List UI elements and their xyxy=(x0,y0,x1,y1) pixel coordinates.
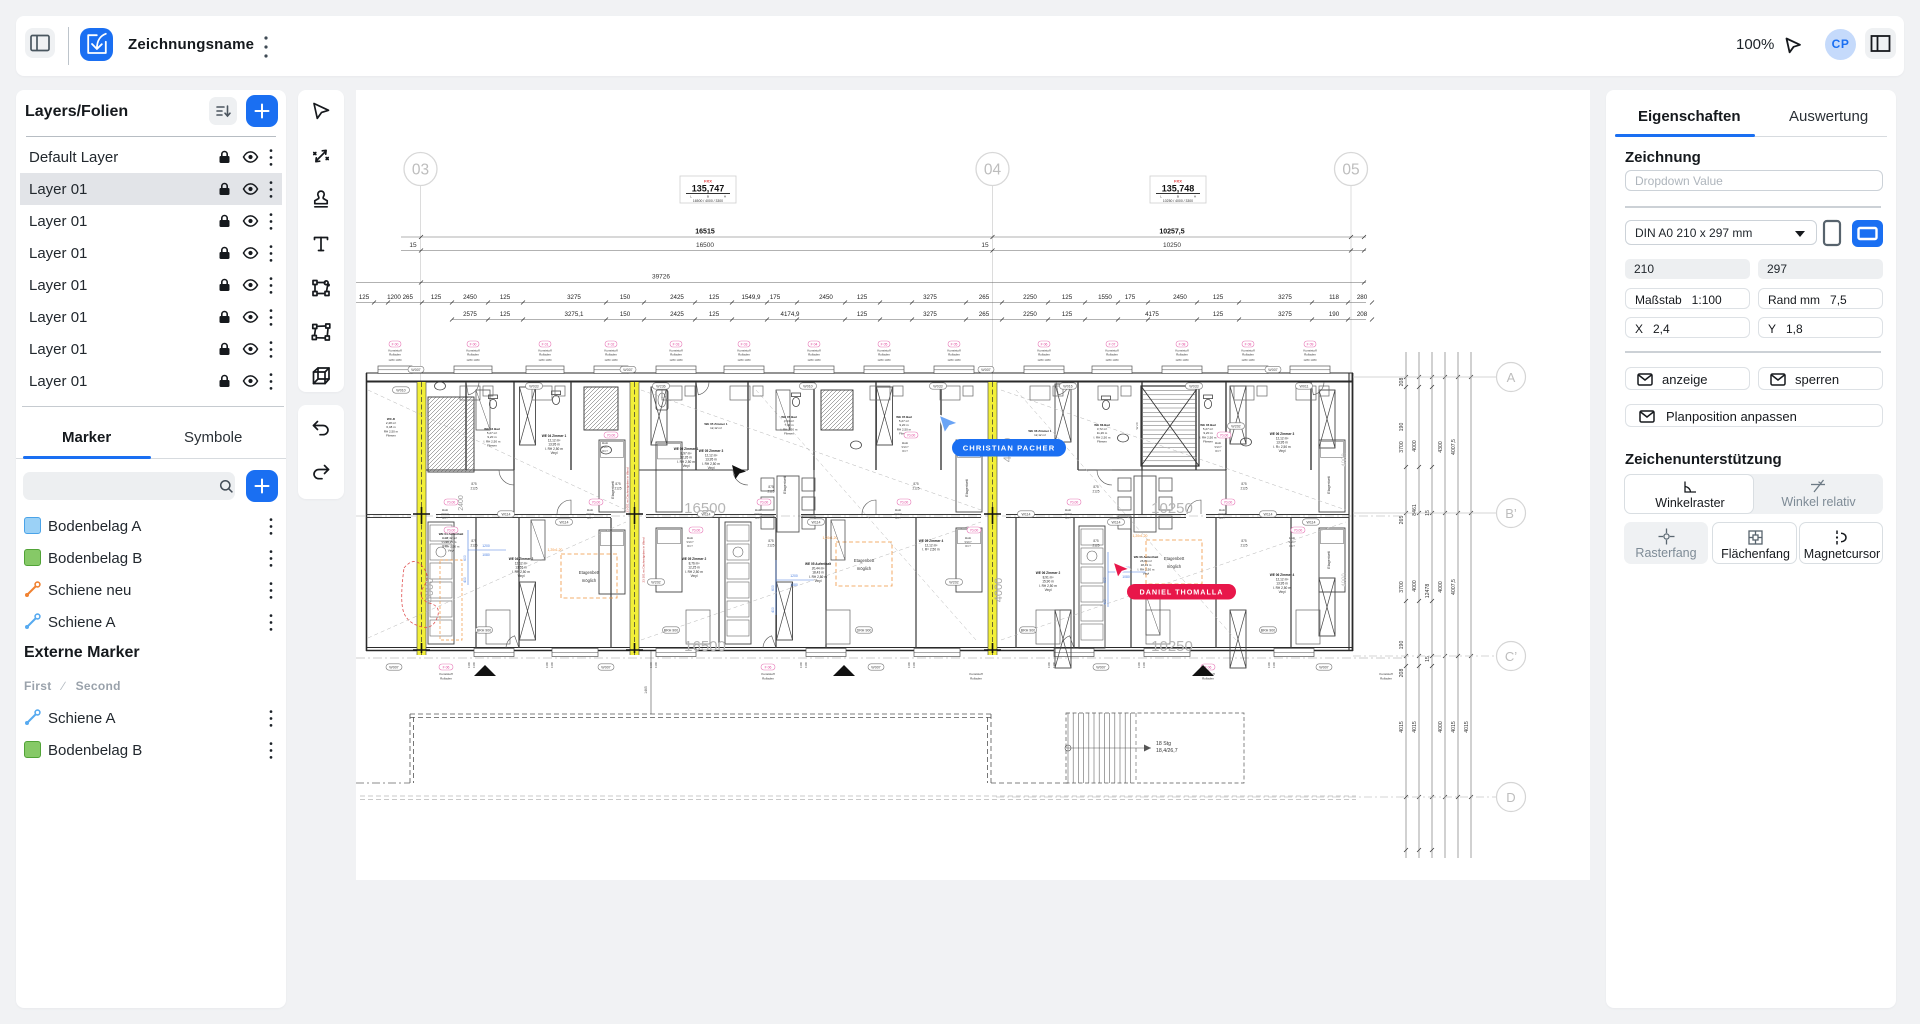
svg-text:möglich: möglich xyxy=(582,578,597,583)
svg-text:265: 265 xyxy=(979,294,990,301)
svg-text:1380: 1380 xyxy=(1142,661,1146,668)
svg-text:F 00: F 00 xyxy=(392,343,399,347)
svg-text:1280 1380: 1280 1380 xyxy=(604,358,618,362)
svg-text:D: D xyxy=(1506,790,1515,805)
svg-text:875: 875 xyxy=(471,539,477,543)
svg-text:23 301 es Dachneigeben in Wand: 23 301 es Dachneigeben in Wand xyxy=(642,537,646,582)
svg-text:70,00: 70,00 xyxy=(760,501,769,505)
svg-text:Vinyl: Vinyl xyxy=(551,451,558,455)
svg-text:1280 1380: 1280 1380 xyxy=(1037,358,1051,362)
svg-text:1549,9: 1549,9 xyxy=(742,294,761,301)
svg-text:Vinyl: Vinyl xyxy=(518,574,525,578)
svg-text:1080: 1080 xyxy=(482,553,490,557)
svg-text:2450: 2450 xyxy=(1173,294,1187,301)
svg-text:16500: 16500 xyxy=(696,242,714,249)
svg-text:F 05: F 05 xyxy=(951,343,958,347)
svg-text:Rolladen: Rolladen xyxy=(808,353,820,357)
svg-text:W114: W114 xyxy=(1263,513,1272,517)
svg-text:Rolladen: Rolladen xyxy=(1202,677,1214,681)
svg-text:Rolladen: Rolladen xyxy=(738,353,750,357)
svg-text:1280 1380: 1280 1380 xyxy=(538,358,552,362)
svg-text:10250: 10250 xyxy=(1151,638,1193,655)
svg-text:möglich: möglich xyxy=(857,566,872,571)
svg-text:RC?: RC? xyxy=(587,516,593,520)
svg-text:1,20x1,20: 1,20x1,20 xyxy=(1133,534,1148,538)
svg-text:8461: 8461 xyxy=(1412,504,1418,516)
svg-text:2125: 2125 xyxy=(767,544,774,548)
svg-text:4175: 4175 xyxy=(1145,311,1159,318)
svg-text:Etagenbett: Etagenbett xyxy=(1327,476,1331,493)
svg-text:135,748: 135,748 xyxy=(1162,184,1195,194)
svg-text:Etagenbett: Etagenbett xyxy=(965,479,969,496)
svg-text:1380: 1380 xyxy=(1272,661,1276,668)
svg-text:2125: 2125 xyxy=(470,487,477,491)
svg-text:Fliesen: Fliesen xyxy=(1203,439,1213,443)
svg-text:H: H xyxy=(1194,195,1196,199)
svg-text:1380: 1380 xyxy=(1137,661,1141,668)
svg-text:3700: 3700 xyxy=(1399,581,1405,593)
svg-text:400: 400 xyxy=(1103,599,1107,605)
svg-text:Rolladen: Rolladen xyxy=(467,353,479,357)
svg-text:265: 265 xyxy=(979,311,990,318)
svg-text:W007: W007 xyxy=(601,666,610,670)
svg-text:3275: 3275 xyxy=(567,294,581,301)
svg-text:W114: W114 xyxy=(811,521,820,525)
svg-text:1280 1380: 1280 1380 xyxy=(388,358,402,362)
svg-text:190: 190 xyxy=(1329,311,1340,318)
svg-text:875: 875 xyxy=(1241,482,1247,486)
svg-text:16500: 16500 xyxy=(684,638,726,655)
svg-text:1465: 1465 xyxy=(644,686,648,694)
svg-text:4007,5: 4007,5 xyxy=(1451,579,1457,595)
svg-text:1200: 1200 xyxy=(482,544,490,548)
svg-text:875: 875 xyxy=(768,485,774,489)
svg-text:175: 175 xyxy=(770,294,781,301)
svg-text:RC?: RC? xyxy=(1215,449,1221,453)
svg-text:1200: 1200 xyxy=(790,574,798,578)
svg-text:125: 125 xyxy=(1213,311,1224,318)
svg-text:RC?: RC? xyxy=(755,516,761,520)
svg-text:4000: 4000 xyxy=(1342,453,1348,467)
svg-text:F 03: F 03 xyxy=(741,343,748,347)
svg-text:70,00: 70,00 xyxy=(607,434,616,438)
svg-text:F 06: F 06 xyxy=(443,666,450,670)
svg-text:1280 1380: 1280 1380 xyxy=(947,358,961,362)
svg-text:18,4/26,7: 18,4/26,7 xyxy=(1156,748,1178,754)
svg-text:2125: 2125 xyxy=(1240,544,1247,548)
svg-text:DANIEL THOMALLA: DANIEL THOMALLA xyxy=(1140,588,1224,597)
svg-text:BRH 900: BRH 900 xyxy=(477,629,492,633)
svg-text:15: 15 xyxy=(1425,656,1431,662)
svg-text:1380: 1380 xyxy=(472,661,476,668)
svg-text:F 08: F 08 xyxy=(1245,343,1252,347)
svg-text:CHRISTIAN PACHER: CHRISTIAN PACHER xyxy=(963,444,1056,453)
svg-text:F 05: F 05 xyxy=(881,343,888,347)
svg-text:875: 875 xyxy=(615,482,621,486)
svg-text:C’: C’ xyxy=(1505,649,1517,664)
svg-text:W033: W033 xyxy=(529,385,538,389)
svg-text:12,12 m²: 12,12 m² xyxy=(710,426,722,430)
svg-text:Rolladen: Rolladen xyxy=(1304,353,1316,357)
svg-text:1380: 1380 xyxy=(467,661,471,668)
svg-text:W114: W114 xyxy=(1306,521,1315,525)
svg-text:1280 1380: 1280 1380 xyxy=(1241,358,1255,362)
svg-text:A: A xyxy=(1507,370,1516,385)
svg-text:RC?: RC? xyxy=(895,516,901,520)
svg-text:1280 1380: 1280 1380 xyxy=(1303,358,1317,362)
svg-text:18 Stg: 18 Stg xyxy=(1156,741,1171,747)
svg-text:RC?: RC? xyxy=(442,544,448,548)
svg-text:10250 / 4000 / 3300: 10250 / 4000 / 3300 xyxy=(1163,199,1193,203)
svg-text:Etagenbett: Etagenbett xyxy=(783,476,787,493)
svg-text:Rolladen: Rolladen xyxy=(1176,353,1188,357)
svg-text:2425: 2425 xyxy=(670,311,684,318)
svg-text:BRH 900: BRH 900 xyxy=(664,629,679,633)
svg-text:4015: 4015 xyxy=(1399,721,1405,733)
svg-text:W007: W007 xyxy=(389,666,398,670)
svg-text:1380: 1380 xyxy=(912,661,916,668)
svg-text:Rolladen: Rolladen xyxy=(539,353,551,357)
svg-text:1550: 1550 xyxy=(1098,294,1112,301)
svg-text:3275: 3275 xyxy=(923,294,937,301)
svg-text:Etagenbett: Etagenbett xyxy=(1327,551,1331,568)
svg-text:10250: 10250 xyxy=(1163,242,1181,249)
svg-text:600: 600 xyxy=(771,585,775,591)
svg-text:12478: 12478 xyxy=(1425,584,1431,599)
svg-text:Fliesen: Fliesen xyxy=(386,433,396,437)
svg-text:4300: 4300 xyxy=(1438,441,1444,453)
svg-text:F 07: F 07 xyxy=(1109,343,1116,347)
svg-text:400: 400 xyxy=(463,577,467,583)
svg-text:4000: 4000 xyxy=(1438,581,1444,593)
svg-text:875: 875 xyxy=(1093,539,1099,543)
svg-text:Etagenbett: Etagenbett xyxy=(854,558,875,563)
svg-text:70,00: 70,00 xyxy=(692,529,701,533)
svg-text:1280 1380: 1280 1380 xyxy=(737,358,751,362)
svg-text:Rolladen: Rolladen xyxy=(970,677,982,681)
svg-text:125: 125 xyxy=(857,294,868,301)
svg-text:3275: 3275 xyxy=(923,311,937,318)
svg-text:Kunststoff: Kunststoff xyxy=(761,672,774,676)
svg-text:2250: 2250 xyxy=(1023,294,1037,301)
svg-text:Etagenbett: Etagenbett xyxy=(1164,556,1185,561)
svg-text:W202: W202 xyxy=(651,581,660,585)
svg-text:2250: 2250 xyxy=(1023,311,1037,318)
svg-text:4015: 4015 xyxy=(1464,721,1470,733)
svg-text:70,00: 70,00 xyxy=(447,529,456,533)
svg-text:W007: W007 xyxy=(981,368,990,372)
svg-text:875: 875 xyxy=(768,539,774,543)
svg-text:23 001 es Dachneigeben in Wand: 23 001 es Dachneigeben in Wand xyxy=(626,467,630,512)
svg-text:RC?: RC? xyxy=(902,449,908,453)
svg-text:1380: 1380 xyxy=(1267,661,1271,668)
svg-text:1080: 1080 xyxy=(790,583,798,587)
svg-text:16515: 16515 xyxy=(695,229,715,236)
svg-text:04: 04 xyxy=(984,162,1002,179)
svg-text:RC?: RC? xyxy=(602,449,608,453)
svg-text:Rolladen: Rolladen xyxy=(1106,353,1118,357)
svg-text:RC?: RC? xyxy=(1065,516,1071,520)
svg-text:W236: W236 xyxy=(656,385,665,389)
svg-text:1200 265: 1200 265 xyxy=(387,294,413,301)
svg-text:1380: 1380 xyxy=(804,661,808,668)
svg-text:875: 875 xyxy=(1241,539,1247,543)
svg-text:Vinyl: Vinyl xyxy=(708,466,715,470)
svg-text:2125: 2125 xyxy=(912,487,919,491)
svg-text:03: 03 xyxy=(412,162,429,179)
svg-text:15: 15 xyxy=(409,242,417,249)
svg-text:F 01: F 01 xyxy=(542,343,549,347)
svg-text:Rolladen: Rolladen xyxy=(1380,677,1392,681)
svg-text:Fliesen: Fliesen xyxy=(784,431,794,435)
svg-text:125: 125 xyxy=(500,294,511,301)
svg-text:W016: W016 xyxy=(1063,385,1072,389)
svg-text:W007: W007 xyxy=(1268,368,1277,372)
svg-text:Rolladen: Rolladen xyxy=(1038,353,1050,357)
svg-text:4174,9: 4174,9 xyxy=(781,311,800,318)
svg-text:Rolladen: Rolladen xyxy=(948,353,960,357)
svg-text:05: 05 xyxy=(1342,162,1359,179)
svg-text:4007,5: 4007,5 xyxy=(1451,439,1457,455)
svg-text:10250: 10250 xyxy=(1151,500,1193,517)
svg-text:600: 600 xyxy=(463,555,467,561)
svg-text:190: 190 xyxy=(1399,641,1405,650)
svg-text:125: 125 xyxy=(431,294,442,301)
svg-text:70,00: 70,00 xyxy=(1070,501,1079,505)
svg-text:135,747: 135,747 xyxy=(692,184,725,194)
svg-text:1280 1380: 1280 1380 xyxy=(466,358,480,362)
svg-text:1280 1380: 1280 1380 xyxy=(877,358,891,362)
svg-text:2125: 2125 xyxy=(1092,490,1099,494)
svg-text:70,00: 70,00 xyxy=(1294,529,1303,533)
svg-text:Vinyl: Vinyl xyxy=(815,579,822,583)
svg-text:F 09: F 09 xyxy=(1307,343,1314,347)
svg-text:W010: W010 xyxy=(396,389,405,393)
svg-text:70,00: 70,00 xyxy=(970,529,979,533)
svg-text:10257,5: 10257,5 xyxy=(1159,229,1184,236)
svg-text:70,00: 70,00 xyxy=(907,434,916,438)
svg-text:RC?: RC? xyxy=(442,516,448,520)
svg-text:125: 125 xyxy=(500,311,511,318)
svg-text:Rolladen: Rolladen xyxy=(670,353,682,357)
svg-text:2400: 2400 xyxy=(458,495,465,511)
svg-text:W033: W033 xyxy=(1189,385,1198,389)
svg-text:1380: 1380 xyxy=(799,661,803,668)
svg-text:Vinyl: Vinyl xyxy=(691,574,698,578)
svg-text:RC?: RC? xyxy=(1219,516,1225,520)
svg-text:BRH 900: BRH 900 xyxy=(1261,629,1276,633)
svg-text:F 06: F 06 xyxy=(1041,343,1048,347)
svg-text:W114: W114 xyxy=(501,513,510,517)
svg-text:3275: 3275 xyxy=(1278,311,1292,318)
svg-text:265: 265 xyxy=(1399,516,1405,525)
svg-text:W007: W007 xyxy=(623,368,632,372)
svg-text:W114: W114 xyxy=(1111,521,1120,525)
svg-text:875: 875 xyxy=(1093,485,1099,489)
svg-text:Kunststoff: Kunststoff xyxy=(439,672,452,676)
svg-text:1380: 1380 xyxy=(654,661,658,668)
svg-text:Rolladen: Rolladen xyxy=(762,677,774,681)
svg-text:4000: 4000 xyxy=(1438,721,1444,733)
svg-text:Vinyl: Vinyl xyxy=(1279,590,1286,594)
svg-text:Vinyl: Vinyl xyxy=(448,548,455,552)
svg-text:Vinyl: Vinyl xyxy=(683,464,690,468)
svg-text:208: 208 xyxy=(1399,669,1405,678)
svg-text:1080: 1080 xyxy=(1122,575,1130,579)
svg-text:2125: 2125 xyxy=(1092,544,1099,548)
svg-text:2575: 2575 xyxy=(463,311,477,318)
svg-text:Rolladen: Rolladen xyxy=(389,353,401,357)
svg-text:190: 190 xyxy=(1399,423,1405,432)
svg-text:RC?: RC? xyxy=(687,544,693,548)
svg-text:125: 125 xyxy=(709,294,720,301)
svg-text:15: 15 xyxy=(981,242,989,249)
svg-text:125: 125 xyxy=(1062,311,1073,318)
svg-text:B’: B’ xyxy=(1505,506,1517,521)
svg-text:280: 280 xyxy=(1357,294,1368,301)
svg-text:1380: 1380 xyxy=(1047,661,1051,668)
svg-text:12,12 m²: 12,12 m² xyxy=(1034,433,1046,437)
svg-text:118: 118 xyxy=(1329,294,1339,301)
svg-text:1380: 1380 xyxy=(550,661,554,668)
svg-text:1280 1380: 1280 1380 xyxy=(1175,358,1189,362)
svg-text:Kunststoff: Kunststoff xyxy=(1379,672,1392,676)
svg-text:4000: 4000 xyxy=(1412,440,1418,452)
svg-text:F 02: F 02 xyxy=(608,343,615,347)
svg-text:125: 125 xyxy=(359,294,370,301)
svg-text:70,00: 70,00 xyxy=(900,501,909,505)
svg-text:W114: W114 xyxy=(1021,513,1030,517)
svg-text:150: 150 xyxy=(620,311,631,318)
svg-text:1280 1380: 1280 1380 xyxy=(1105,358,1119,362)
svg-text:W011: W011 xyxy=(1299,385,1308,389)
svg-text:F 04: F 04 xyxy=(811,343,818,347)
svg-text:RC?: RC? xyxy=(1289,544,1295,548)
svg-text:Rolladen: Rolladen xyxy=(605,353,617,357)
svg-text:W033: W033 xyxy=(933,385,942,389)
svg-text:2450: 2450 xyxy=(819,294,833,301)
svg-text:3275,1: 3275,1 xyxy=(565,311,584,318)
svg-text:l. R= 2,50 m: l. R= 2,50 m xyxy=(922,548,940,552)
svg-text:H: H xyxy=(724,195,726,199)
svg-text:DRH 900: DRH 900 xyxy=(857,629,872,633)
svg-text:600: 600 xyxy=(1103,577,1107,583)
svg-text:Fliesen: Fliesen xyxy=(487,443,497,447)
svg-text:2425: 2425 xyxy=(670,294,684,301)
svg-text:W007: W007 xyxy=(1096,666,1105,670)
svg-text:1380: 1380 xyxy=(907,661,911,668)
svg-text:Kunststoff: Kunststoff xyxy=(969,672,982,676)
svg-text:W202: W202 xyxy=(949,581,958,585)
svg-text:70,00: 70,00 xyxy=(1220,434,1229,438)
svg-text:150: 150 xyxy=(620,294,631,301)
svg-text:39726: 39726 xyxy=(652,274,670,281)
svg-text:70,00: 70,00 xyxy=(1224,501,1233,505)
svg-text:RC?: RC? xyxy=(965,544,971,548)
svg-text:Rolladen: Rolladen xyxy=(878,353,890,357)
svg-text:4000: 4000 xyxy=(424,578,436,602)
svg-text:2450: 2450 xyxy=(463,294,477,301)
svg-text:1280 1380: 1280 1380 xyxy=(669,358,683,362)
svg-text:W202: W202 xyxy=(1231,425,1240,429)
svg-text:W010: W010 xyxy=(803,385,812,389)
svg-text:4015: 4015 xyxy=(1412,721,1418,733)
svg-text:F 08: F 08 xyxy=(1179,343,1186,347)
svg-text:Vinyl: Vinyl xyxy=(1143,571,1150,575)
svg-text:3275: 3275 xyxy=(1278,294,1292,301)
svg-text:175: 175 xyxy=(1125,294,1136,301)
svg-text:4000: 4000 xyxy=(993,578,1005,602)
svg-text:Rolladen: Rolladen xyxy=(440,677,452,681)
svg-text:3700: 3700 xyxy=(1399,441,1405,453)
svg-text:W007: W007 xyxy=(411,368,420,372)
svg-text:W007: W007 xyxy=(1319,666,1328,670)
svg-text:875: 875 xyxy=(913,482,919,486)
svg-text:4000: 4000 xyxy=(1412,580,1418,592)
svg-text:W 20: W 20 xyxy=(1135,422,1139,429)
svg-text:W114: W114 xyxy=(559,521,568,525)
svg-text:4015: 4015 xyxy=(1451,721,1457,733)
svg-text:F 06: F 06 xyxy=(765,666,772,670)
svg-text:1380: 1380 xyxy=(545,661,549,668)
svg-text:BRH 900: BRH 900 xyxy=(1021,629,1036,633)
svg-text:125: 125 xyxy=(1213,294,1224,301)
svg-text:F 03: F 03 xyxy=(673,343,680,347)
svg-text:70,00: 70,00 xyxy=(447,501,456,505)
svg-text:möglich: möglich xyxy=(1167,564,1182,569)
svg-text:2125: 2125 xyxy=(470,544,477,548)
svg-text:16500 / 4000 / 3300: 16500 / 4000 / 3300 xyxy=(693,199,723,203)
svg-text:875: 875 xyxy=(471,482,477,486)
svg-text:Vinyl: Vinyl xyxy=(1045,588,1052,592)
svg-text:Rolladen: Rolladen xyxy=(1242,353,1254,357)
svg-text:4000: 4000 xyxy=(1342,573,1348,587)
svg-text:125: 125 xyxy=(857,311,868,318)
svg-text:2125: 2125 xyxy=(767,490,774,494)
svg-text:Vinyl: Vinyl xyxy=(1279,449,1286,453)
svg-text:W007: W007 xyxy=(871,666,880,670)
svg-text:Fliesen: Fliesen xyxy=(1097,439,1107,443)
svg-text:F 00: F 00 xyxy=(470,343,477,347)
svg-text:1280 1380: 1280 1380 xyxy=(807,358,821,362)
svg-text:70,00: 70,00 xyxy=(592,501,601,505)
svg-text:125: 125 xyxy=(1062,294,1073,301)
svg-text:208: 208 xyxy=(1399,378,1405,387)
svg-text:1,20x1,20: 1,20x1,20 xyxy=(823,536,838,540)
svg-text:125: 125 xyxy=(709,311,720,318)
svg-text:208: 208 xyxy=(1357,311,1368,318)
svg-text:Etagenbett: Etagenbett xyxy=(579,570,600,575)
svg-text:16500: 16500 xyxy=(684,500,726,517)
svg-text:2125: 2125 xyxy=(1240,487,1247,491)
svg-text:2125: 2125 xyxy=(614,487,621,491)
svg-text:400: 400 xyxy=(771,607,775,613)
